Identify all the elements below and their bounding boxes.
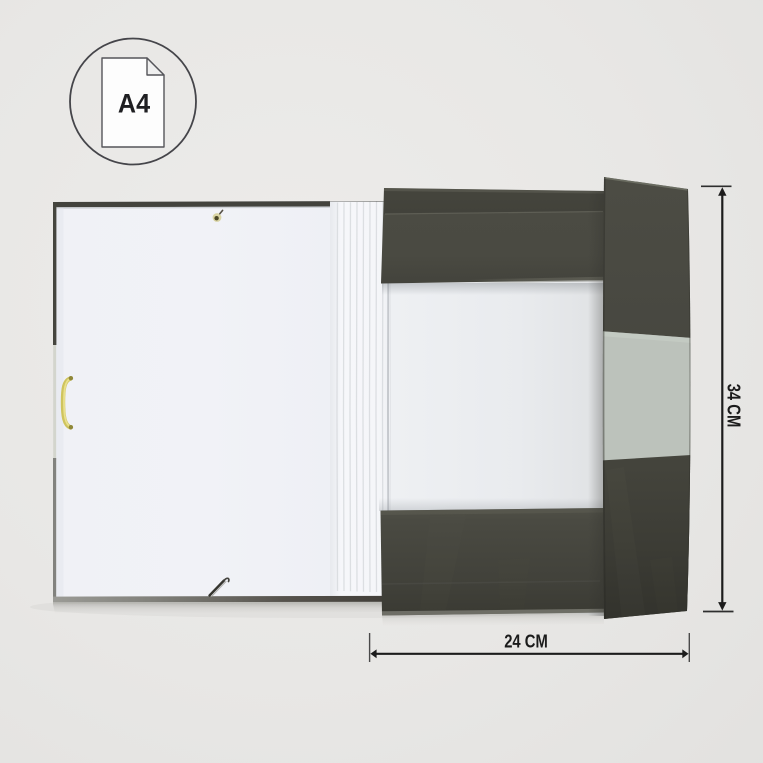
svg-text:34 CM: 34 CM bbox=[723, 384, 744, 428]
svg-text:A4: A4 bbox=[118, 90, 151, 119]
svg-text:24 CM: 24 CM bbox=[504, 631, 548, 652]
